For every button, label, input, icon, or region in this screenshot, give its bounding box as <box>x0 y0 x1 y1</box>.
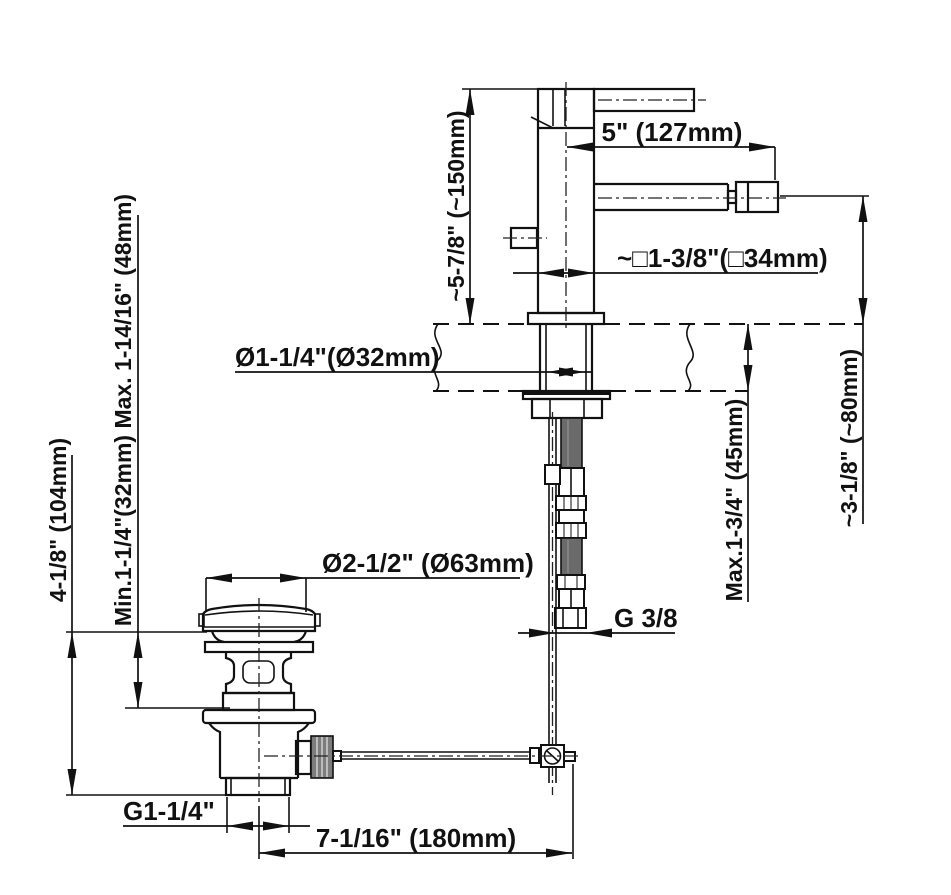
dim-faucet-height: ~5-7/8" (~150mm) <box>443 89 538 324</box>
dim-drain-thread-label: G1-1/4" <box>123 796 215 826</box>
faucet-installation-diagram: ~5-7/8" (~150mm) 5" (127mm) ~□1-3/8"(□34… <box>0 0 951 895</box>
dim-drain-cap: Ø2-1/2" (Ø63mm) <box>206 548 534 612</box>
dim-rod-offset-label: 7-1/16" (180mm) <box>316 823 516 853</box>
deck-break-right <box>686 324 693 391</box>
dim-rod-offset: 7-1/16" (180mm) <box>259 764 573 859</box>
dim-spout-height-label: ~3-1/8" (~80mm) <box>836 349 862 527</box>
dim-supply-thread: G 3/8 <box>518 603 678 638</box>
locknut <box>532 399 602 418</box>
drain-side-outlet <box>296 736 341 778</box>
dim-deck-thickness: Max.1-3/4" (45mm) <box>721 324 753 602</box>
counter-deck <box>433 324 863 391</box>
dim-spout-reach-label: 5" (127mm) <box>602 117 743 147</box>
drain-tailpiece <box>226 778 290 795</box>
dim-drain-deck-range-label: Min.1-1/4"(32mm) Max. 1-14/16" (48mm) <box>110 194 136 626</box>
dim-drain-cap-label: Ø2-1/2" (Ø63mm) <box>322 548 534 578</box>
side-pin <box>503 228 547 248</box>
aerator <box>736 182 778 212</box>
technical-drawing-page: ~5-7/8" (~150mm) 5" (127mm) ~□1-3/8"(□34… <box>0 0 951 895</box>
rod-coupler <box>545 465 560 484</box>
dim-shank-diameter: Ø1-1/4"(Ø32mm) <box>235 342 592 377</box>
hose-end-nut <box>555 608 586 628</box>
dim-faucet-height-label: ~5-7/8" (~150mm) <box>443 110 469 301</box>
dim-shank-diameter-label: Ø1-1/4"(Ø32mm) <box>235 342 440 372</box>
drain-assembly <box>199 598 341 802</box>
faucet-handle <box>594 89 706 111</box>
dim-deck-thickness-label: Max.1-3/4" (45mm) <box>721 399 747 602</box>
spout <box>594 182 786 212</box>
dim-drain-thread: G1-1/4" <box>123 796 310 833</box>
dim-body-square: ~□1-3/8"(□34mm) <box>513 243 828 278</box>
dim-spout-reach: 5" (127mm) <box>567 117 775 180</box>
dim-drain-height-label: 4-1/8" (104mm) <box>45 438 71 602</box>
dim-body-square-label: ~□1-3/8"(□34mm) <box>617 243 828 273</box>
supply-hose <box>555 418 586 628</box>
dim-supply-thread-label: G 3/8 <box>614 603 678 633</box>
